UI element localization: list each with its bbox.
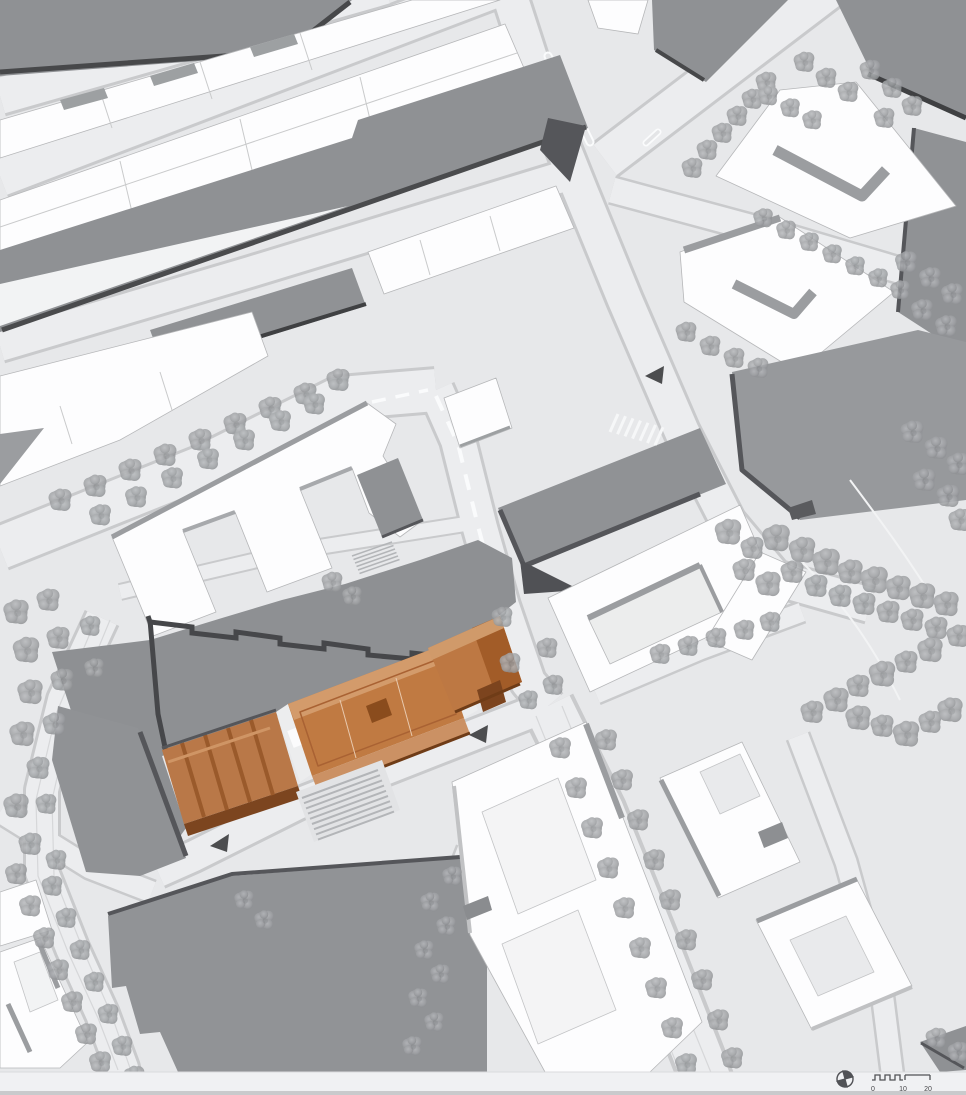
site-plan-canvas: 0 10 20 bbox=[0, 0, 966, 1095]
site-plan-screenshot: 0 10 20 bbox=[0, 0, 966, 1095]
scale-label-20: 20 bbox=[924, 1086, 932, 1093]
page-edge bbox=[0, 1091, 966, 1095]
scale-label-10: 10 bbox=[899, 1086, 907, 1093]
scale-label-0: 0 bbox=[871, 1086, 875, 1093]
